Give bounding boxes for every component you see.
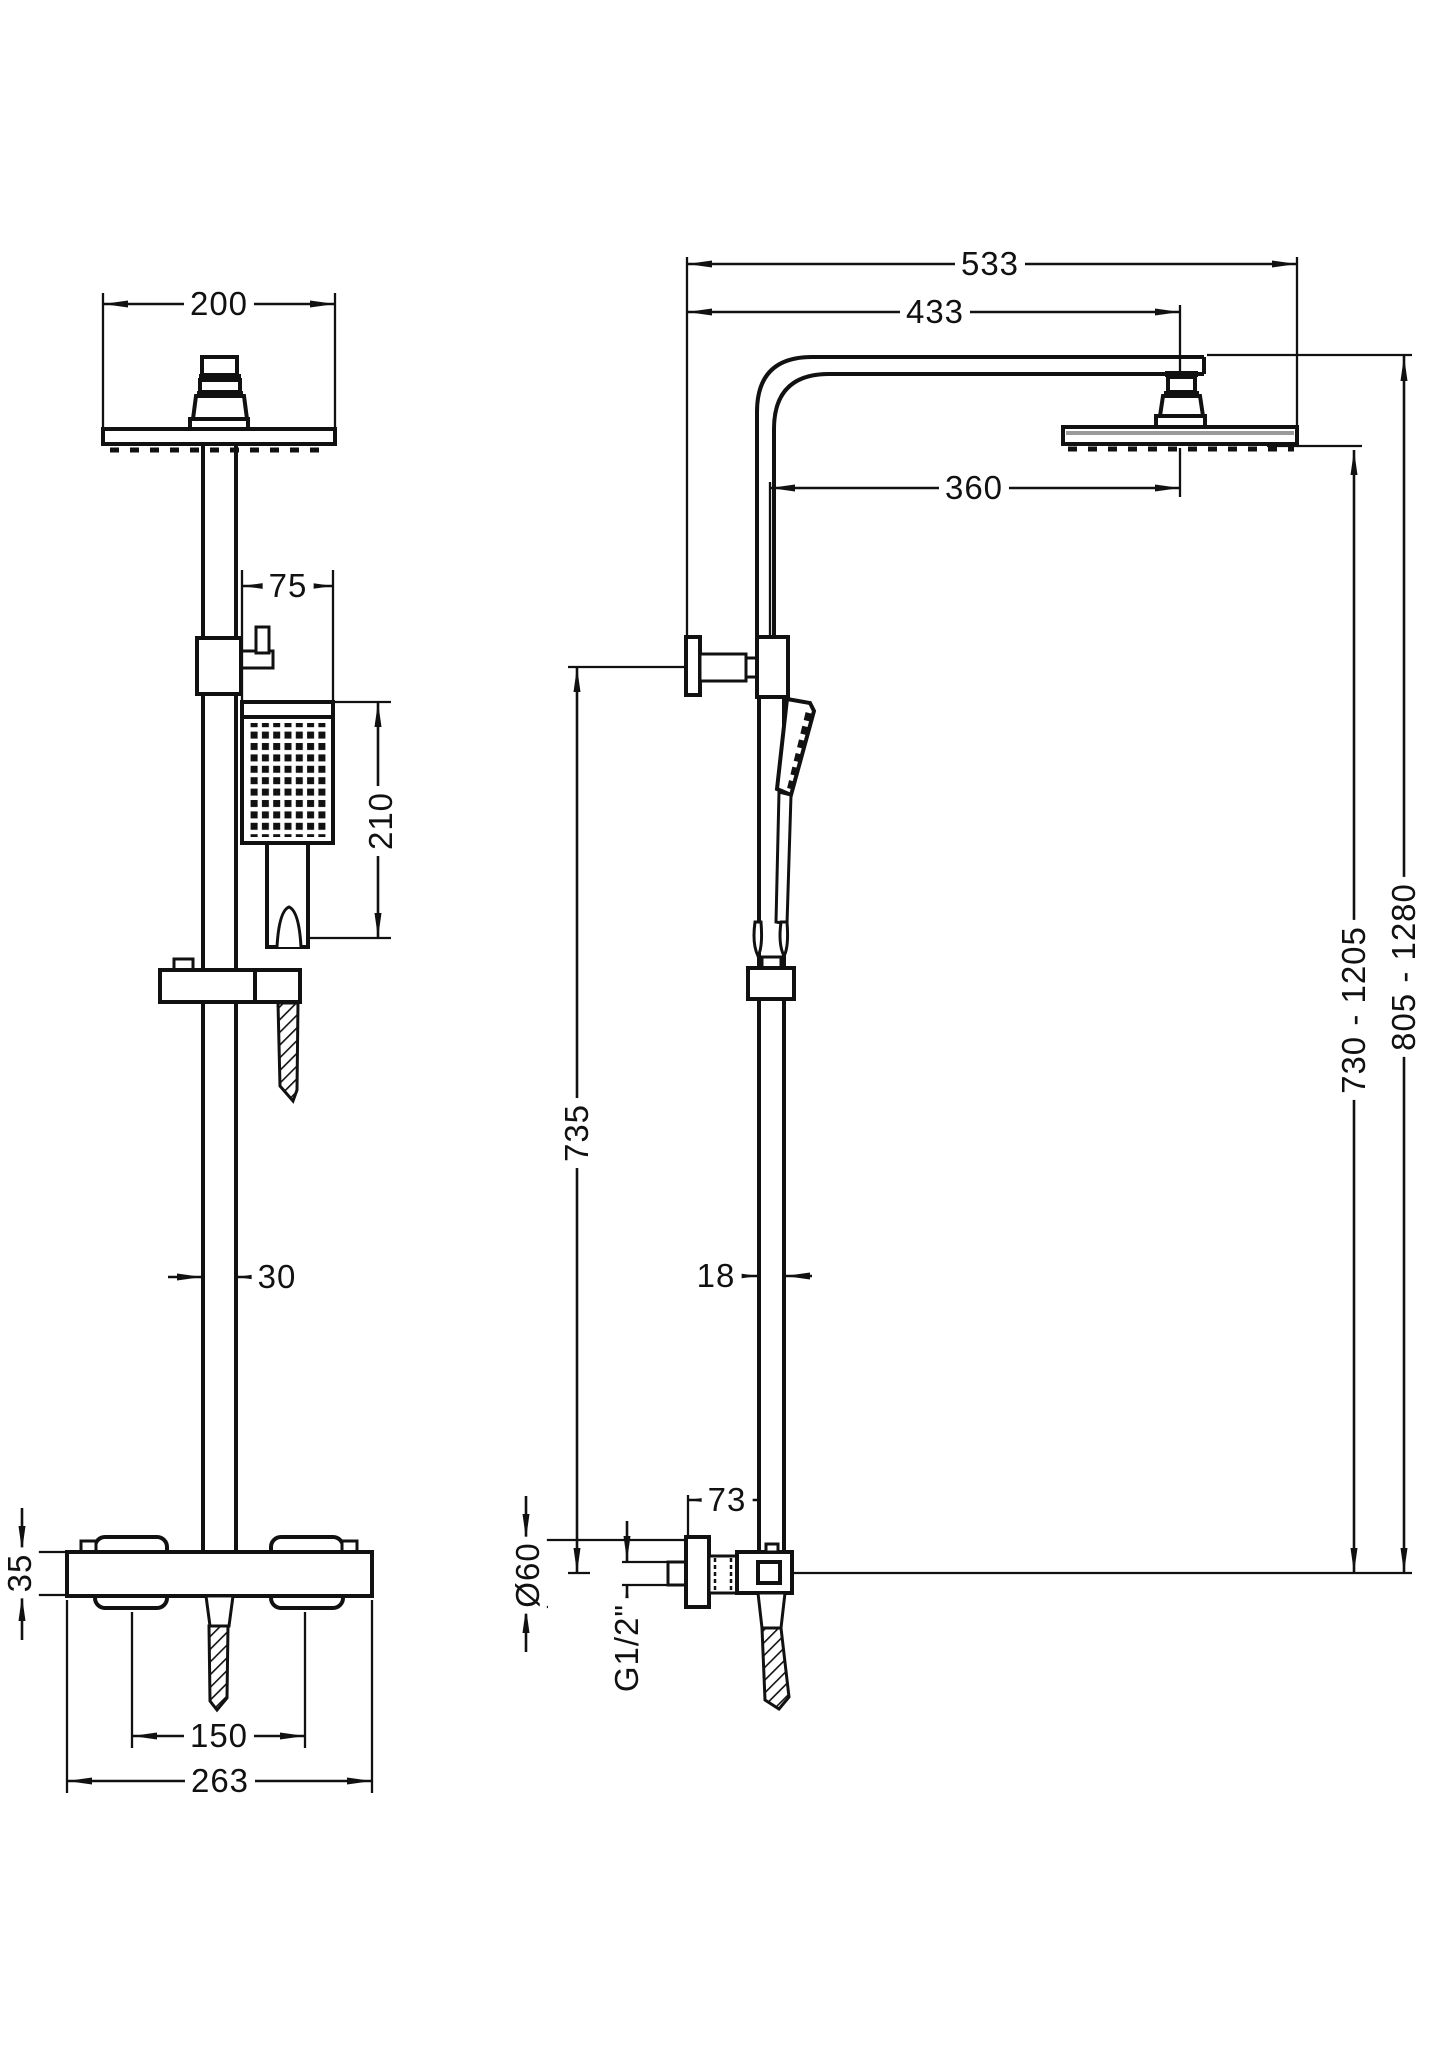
technical-drawing-page: 200 75 210 30 35 150 263 533 433 360 735…	[0, 0, 1445, 2045]
side-thermostatic-valve	[668, 1537, 792, 1709]
side-wall-flange	[686, 1537, 709, 1607]
side-slider-bracket	[748, 957, 794, 999]
front-handset	[242, 702, 333, 947]
dim-75-label: 75	[263, 567, 314, 605]
dim-360-label: 360	[939, 469, 1009, 507]
side-shower-hose	[762, 1628, 789, 1709]
dim-35-label: 35	[1, 1548, 39, 1599]
front-view	[67, 357, 372, 1710]
dim-73-label: 73	[702, 1481, 753, 1519]
side-cradle-hook-right	[780, 922, 788, 956]
front-handset-spray-face	[249, 723, 328, 837]
dim-210-label: 210	[362, 786, 400, 856]
side-view	[668, 357, 1297, 1709]
dim-730-1205-label: 730 - 1205	[1335, 920, 1373, 1100]
front-thermostatic-valve	[67, 1537, 372, 1626]
dim-30-label: 30	[252, 1258, 303, 1296]
dim-735-label: 735	[558, 1098, 596, 1168]
front-shower-hose-upper	[278, 1003, 298, 1101]
dim-433-label: 433	[900, 293, 970, 331]
dim-263-label: 263	[185, 1762, 255, 1800]
dim-805-1280-label: 805 - 1280	[1385, 877, 1423, 1057]
front-shower-hose-lower	[209, 1626, 228, 1710]
front-diverter	[197, 627, 273, 694]
dim-g-half-inch-label: G1/2"	[608, 1598, 646, 1698]
front-valve-outlet	[206, 1596, 233, 1626]
dim-150-label: 150	[184, 1717, 254, 1755]
dim-533-label: 533	[955, 245, 1025, 283]
dim-200-label: 200	[184, 285, 254, 323]
side-valve-outlet	[758, 1593, 785, 1628]
dim-18-label: 18	[691, 1257, 742, 1295]
front-shower-head	[103, 357, 335, 450]
side-inlet-nipple	[668, 1562, 686, 1585]
side-wall-bracket	[686, 637, 788, 697]
front-valve-body	[67, 1552, 372, 1596]
dim-dia60-label: Ø60	[509, 1536, 547, 1613]
side-cradle-hook-left	[754, 922, 762, 956]
